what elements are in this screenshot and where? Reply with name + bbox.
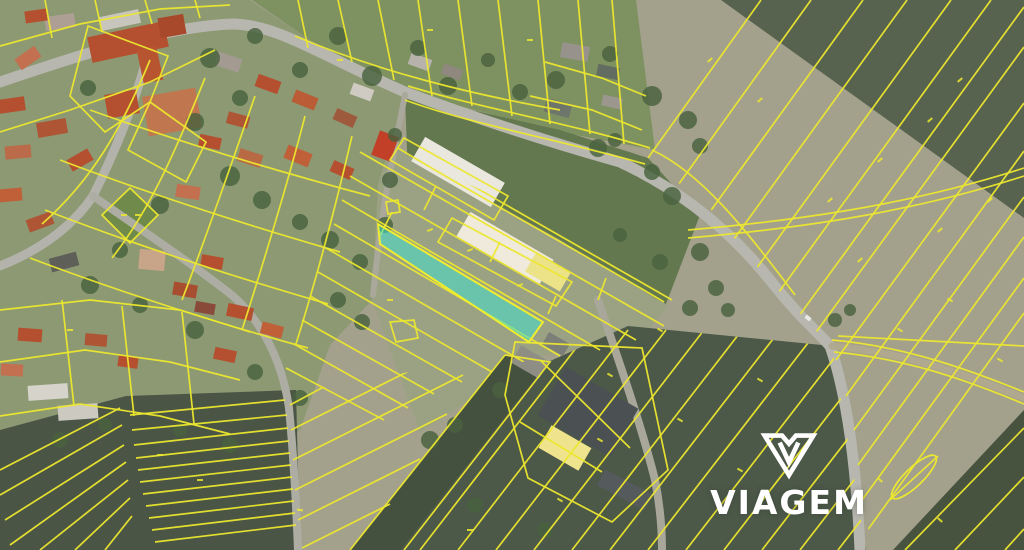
tree <box>186 321 204 339</box>
tree <box>613 228 627 242</box>
parcel-number-mark <box>121 214 127 216</box>
satellite-map-canvas <box>0 0 1024 550</box>
parcel-number-mark <box>467 529 473 531</box>
parcel-number-mark <box>387 299 393 301</box>
tree <box>253 191 271 209</box>
listing-map-image[interactable]: VIAGEM <box>0 0 1024 550</box>
tree <box>247 28 263 44</box>
parcel-number-mark <box>337 59 343 61</box>
tree <box>421 431 439 449</box>
tree <box>721 303 735 317</box>
tree <box>844 304 856 316</box>
tree <box>708 280 724 296</box>
tree <box>52 432 68 448</box>
building <box>0 187 23 202</box>
building <box>28 383 69 401</box>
tree <box>481 53 495 67</box>
tree <box>382 172 398 188</box>
tree <box>200 48 220 68</box>
tree <box>81 276 99 294</box>
tree <box>362 66 382 86</box>
building <box>1 363 24 376</box>
tree <box>467 497 483 513</box>
tree <box>330 292 346 308</box>
tree <box>80 80 96 96</box>
parcel-number-mark <box>427 29 433 31</box>
parcel-number-mark <box>197 479 203 481</box>
building <box>4 144 31 159</box>
tree <box>512 84 528 100</box>
building <box>18 328 43 343</box>
tree <box>292 214 308 230</box>
tree <box>292 62 308 78</box>
tree <box>679 111 697 129</box>
tree <box>98 418 112 432</box>
tree <box>682 300 698 316</box>
parcel-number-mark <box>67 329 73 331</box>
tree <box>232 90 248 106</box>
parcel-number-mark <box>157 454 163 456</box>
tree <box>644 164 660 180</box>
parcel-number-mark <box>527 39 533 41</box>
tree <box>222 437 238 453</box>
tree <box>388 128 402 142</box>
tree <box>547 71 565 89</box>
tree <box>828 313 842 327</box>
building <box>85 333 108 347</box>
tree <box>589 139 607 157</box>
tree <box>652 254 668 270</box>
parcel-number-mark <box>135 214 141 216</box>
tree <box>663 187 681 205</box>
tree <box>691 243 709 261</box>
tree <box>247 364 263 380</box>
